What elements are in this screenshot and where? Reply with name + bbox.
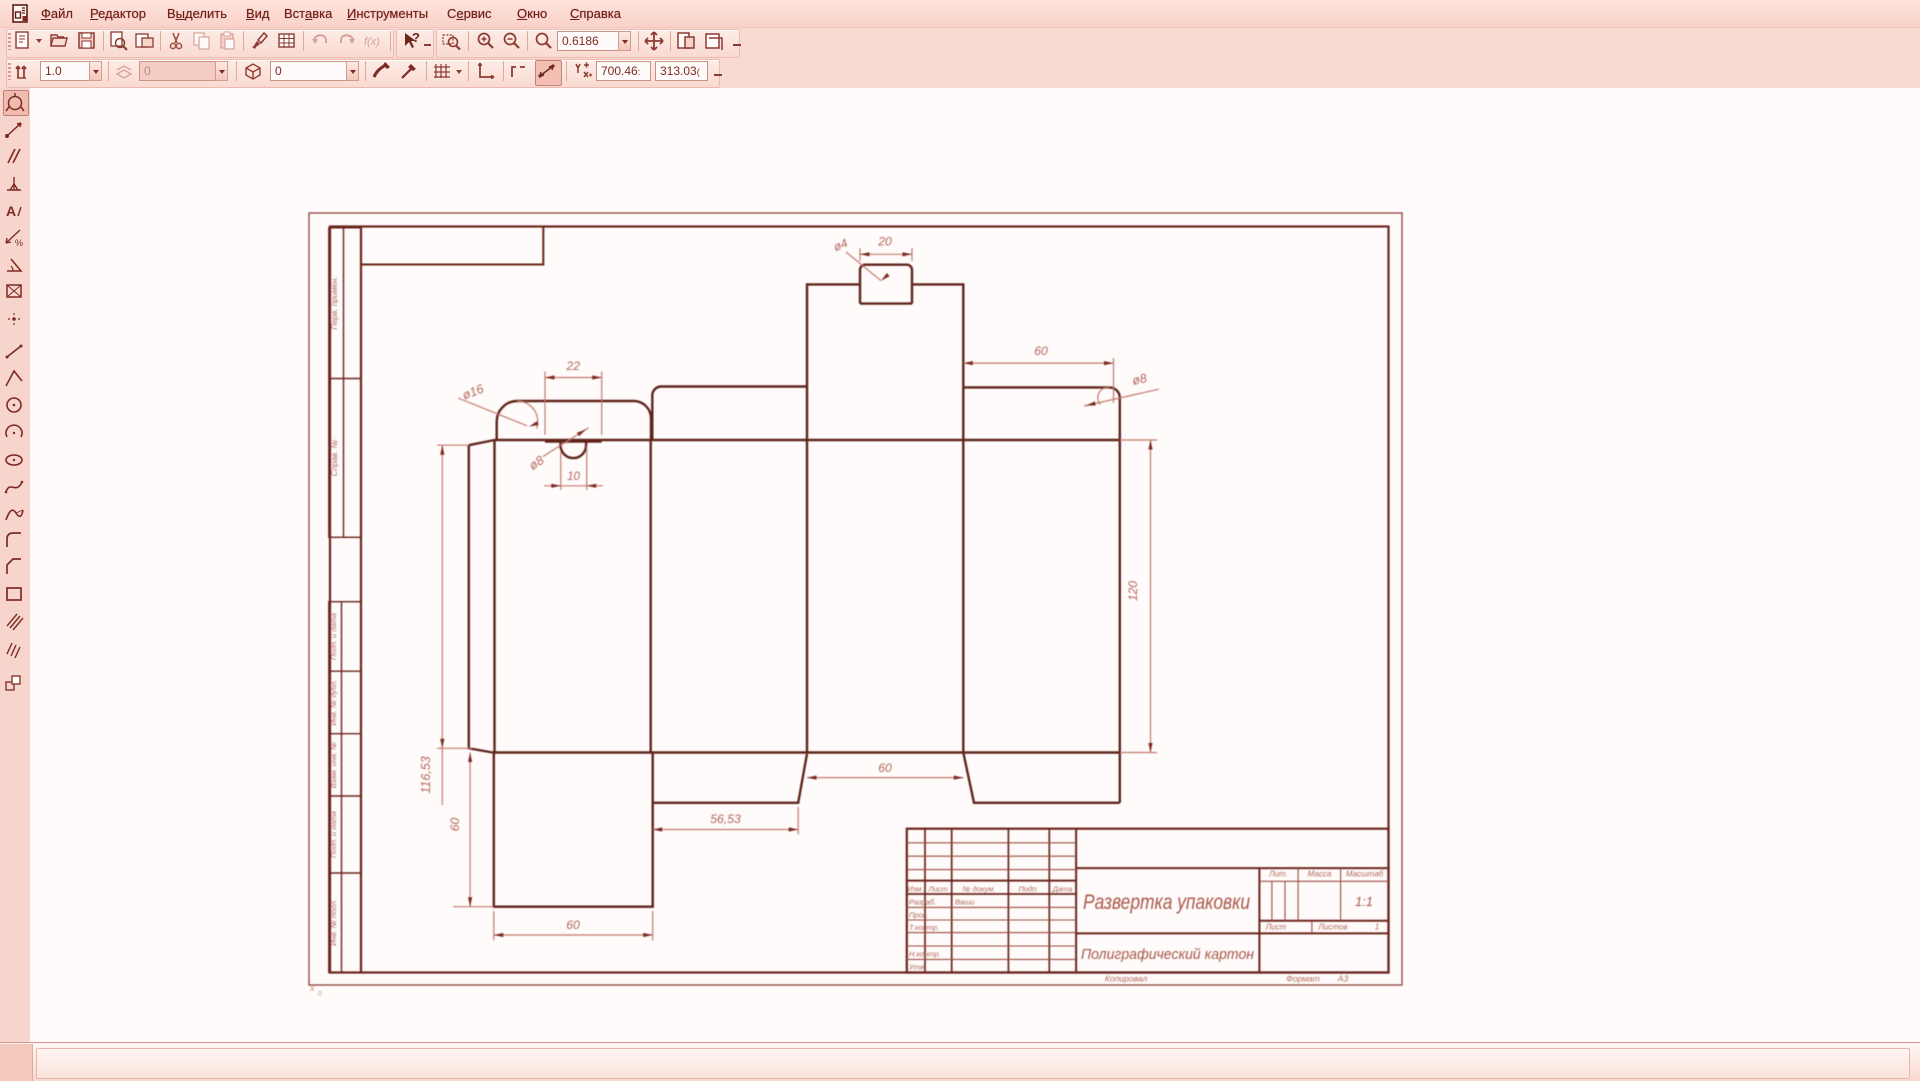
svg-text:20: 20: [877, 235, 892, 249]
svg-text:0: 0: [318, 991, 322, 998]
svg-text:Лист: Лист: [927, 885, 947, 894]
svg-text:Лист: Лист: [1265, 923, 1287, 932]
svg-text:Подп.: Подп.: [1019, 885, 1039, 894]
svg-text:60: 60: [448, 818, 462, 832]
svg-text:Подп. и дата: Подп. и дата: [329, 613, 338, 660]
svg-text:Изм.: Изм.: [908, 885, 924, 894]
svg-text:Инв. № подл.: Инв. № подл.: [329, 899, 338, 946]
svg-text:60: 60: [878, 761, 892, 775]
svg-text:№ докум.: № докум.: [962, 885, 995, 894]
svg-text:Разраб.: Разраб.: [909, 898, 936, 907]
svg-text:Взам. инв. №: Взам. инв. №: [329, 742, 338, 788]
svg-text:Т.контр.: Т.контр.: [909, 923, 939, 932]
svg-text:А3: А3: [1337, 974, 1349, 984]
svg-text:Утв.: Утв.: [908, 963, 926, 972]
svg-text:Масса: Масса: [1308, 870, 1332, 879]
svg-text:Полиграфический картон: Полиграфический картон: [1081, 947, 1254, 963]
svg-text:Пров.: Пров.: [909, 911, 929, 920]
svg-text:116,53: 116,53: [419, 756, 433, 793]
svg-text:Перв. примен.: Перв. примен.: [330, 276, 339, 329]
svg-text:Справ. №: Справ. №: [330, 439, 339, 476]
svg-text:Развертка упаковки: Развертка упаковки: [1083, 891, 1250, 914]
svg-text:Инв. № дубл.: Инв. № дубл.: [329, 679, 338, 725]
svg-text:1: 1: [1375, 923, 1379, 932]
svg-text:10: 10: [567, 471, 580, 483]
svg-text:Подп. и дата: Подп. и дата: [329, 811, 338, 858]
svg-text:Дата: Дата: [1052, 885, 1073, 894]
svg-text:Масштаб: Масштаб: [1346, 870, 1384, 879]
svg-text:Лит.: Лит.: [1268, 870, 1288, 879]
svg-text:Копировал: Копировал: [1105, 974, 1147, 984]
svg-text:22: 22: [566, 359, 581, 373]
svg-text:60: 60: [1034, 344, 1048, 358]
svg-text:Ваши: Ваши: [955, 898, 975, 907]
svg-text:56,53: 56,53: [710, 812, 741, 826]
svg-text:1:1: 1:1: [1355, 894, 1373, 909]
svg-text:120: 120: [1126, 581, 1140, 602]
svg-text:60: 60: [566, 918, 580, 932]
svg-text:x: x: [309, 983, 315, 993]
svg-text:Листов: Листов: [1317, 923, 1347, 932]
svg-text:Н.контр.: Н.контр.: [909, 950, 941, 959]
svg-text:Формат: Формат: [1286, 974, 1320, 984]
